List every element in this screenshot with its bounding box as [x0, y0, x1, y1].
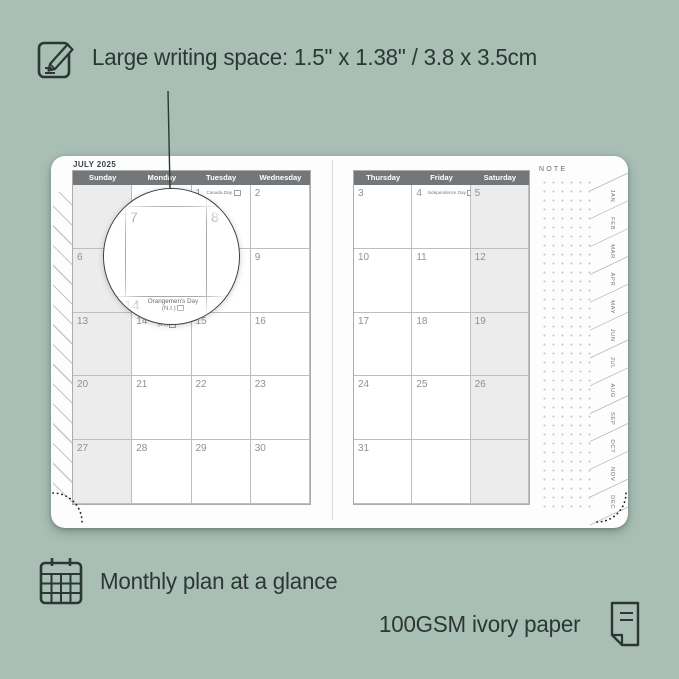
magnifier-circle: 7 8 14 Orangemen's Day(N.I.): [103, 188, 240, 325]
day-cell: 11: [412, 249, 470, 313]
tab-dec: DEC: [609, 495, 615, 509]
day-header: Thursday: [354, 171, 412, 185]
tab-feb: FEB: [609, 217, 615, 230]
day-cell: 18: [412, 313, 470, 377]
magnified-day-7: 7: [130, 209, 138, 225]
tab-jan: JAN: [609, 190, 615, 203]
day-cell: 10: [354, 249, 412, 313]
day-cell: 21: [132, 376, 191, 440]
tab-oct: OCT: [609, 439, 615, 453]
day-header: Friday: [412, 171, 470, 185]
product-image: Large writing space: 1.5" x 1.38" / 3.8 …: [0, 0, 679, 679]
month-tabs: JAN FEB MAR APR MAY JUN JUL AUG SEP OCT …: [590, 182, 628, 516]
right-day-headers: Thursday Friday Saturday: [354, 171, 529, 185]
tab-jul: JUL: [609, 357, 615, 369]
right-page-grid: Thursday Friday Saturday 3 4Independence…: [353, 170, 530, 505]
day-cell: 9: [251, 249, 310, 313]
day-header: Tuesday: [192, 171, 251, 185]
holiday-flag-icon: [177, 305, 184, 311]
tab-apr: APR: [609, 273, 615, 287]
day-header: Sunday: [73, 171, 132, 185]
day-cell: 27: [73, 440, 132, 504]
tab-may: MAY: [609, 300, 615, 314]
left-day-headers: Sunday Monday Tuesday Wednesday: [73, 171, 310, 185]
day-cell: 31: [354, 440, 412, 504]
day-header: Saturday: [471, 171, 529, 185]
day-cell: 25: [412, 376, 470, 440]
magnified-day-8: 8: [211, 209, 219, 225]
note-dot-grid: [538, 176, 594, 514]
magnified-grid-line: [125, 206, 126, 296]
day-cell: 17: [354, 313, 412, 377]
bottom-right-feature-text: 100GSM ivory paper: [379, 611, 580, 638]
day-header: Wednesday: [251, 171, 310, 185]
magnified-grid-line: [206, 189, 207, 324]
day-cell: 30: [251, 440, 310, 504]
day-cell: 20: [73, 376, 132, 440]
tab-aug: AUG: [609, 384, 615, 398]
day-cell: 2: [251, 185, 310, 249]
top-feature-text: Large writing space: 1.5" x 1.38" / 3.8 …: [92, 44, 537, 71]
calendar-grid-icon: [38, 555, 84, 607]
day-cell: 3: [354, 185, 412, 249]
note-pencil-icon: [36, 34, 80, 81]
holiday-label: Independence Day: [427, 190, 466, 195]
holiday-label: Canada Day: [207, 190, 233, 195]
day-cell: [471, 440, 529, 504]
folded-paper-icon: [605, 600, 643, 648]
day-header: Monday: [132, 171, 191, 185]
page-edge-hatch: [53, 192, 73, 502]
day-cell: 29: [192, 440, 251, 504]
top-feature-annotation: Large writing space: 1.5" x 1.38" / 3.8 …: [36, 34, 560, 81]
note-label: NOTE: [539, 166, 567, 173]
magnified-day-14: 14: [124, 297, 140, 313]
bottom-left-feature-text: Monthly plan at a glance: [100, 568, 337, 595]
tab-jun: JUN: [609, 329, 615, 342]
holiday-flag-icon: [234, 190, 241, 196]
tab-mar: MAR: [609, 244, 615, 259]
day-cell: 26: [471, 376, 529, 440]
day-cell: 24: [354, 376, 412, 440]
tab-sep: SEP: [609, 412, 615, 425]
day-cell: 22: [192, 376, 251, 440]
day-cell: 19: [471, 313, 529, 377]
page-gutter: [332, 160, 333, 520]
day-cell: 4Independence Day: [412, 185, 470, 249]
day-cell: 16: [251, 313, 310, 377]
day-cell: [412, 440, 470, 504]
day-cell: 15: [192, 313, 251, 377]
day-cell: 23: [251, 376, 310, 440]
right-day-cells: 3 4Independence Day 5 10 11 12 17 18 19 …: [354, 185, 529, 504]
day-cell: 5: [471, 185, 529, 249]
month-title: JULY 2025: [73, 160, 116, 169]
bottom-right-feature-annotation: 100GSM ivory paper: [379, 600, 643, 648]
magnified-holiday: Orangemen's Day(N.I.): [142, 298, 204, 312]
day-cell: 12: [471, 249, 529, 313]
bottom-left-feature-annotation: Monthly plan at a glance: [38, 555, 350, 607]
day-cell: 28: [132, 440, 191, 504]
tab-nov: NOV: [609, 467, 615, 481]
day-cell: 13: [73, 313, 132, 377]
